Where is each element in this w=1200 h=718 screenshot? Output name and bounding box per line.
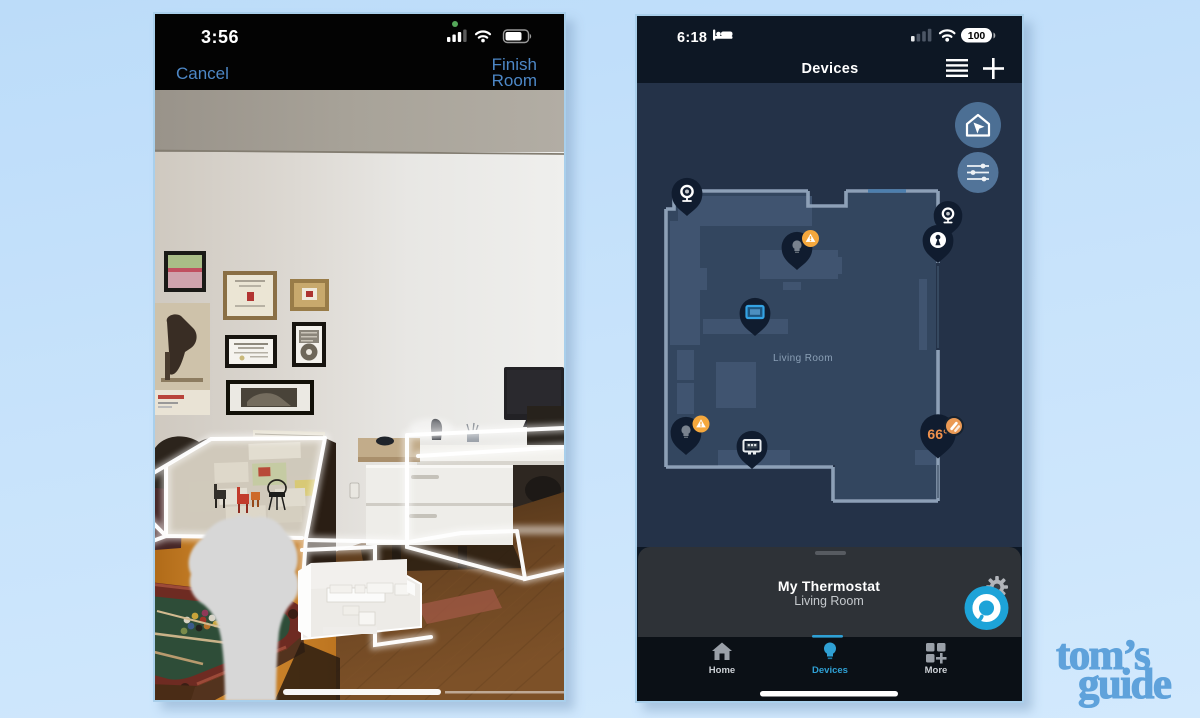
- svg-text:6:18: 6:18: [677, 30, 707, 46]
- svg-text:Living Room: Living Room: [773, 353, 833, 364]
- svg-text:Devices: Devices: [812, 665, 848, 676]
- svg-text:Living Room: Living Room: [794, 594, 863, 608]
- svg-text:My Thermostat: My Thermostat: [778, 578, 880, 594]
- svg-text:100: 100: [968, 30, 986, 42]
- svg-text:Home: Home: [709, 665, 735, 676]
- svg-text:More: More: [925, 665, 948, 676]
- svg-text:Devices: Devices: [802, 61, 859, 77]
